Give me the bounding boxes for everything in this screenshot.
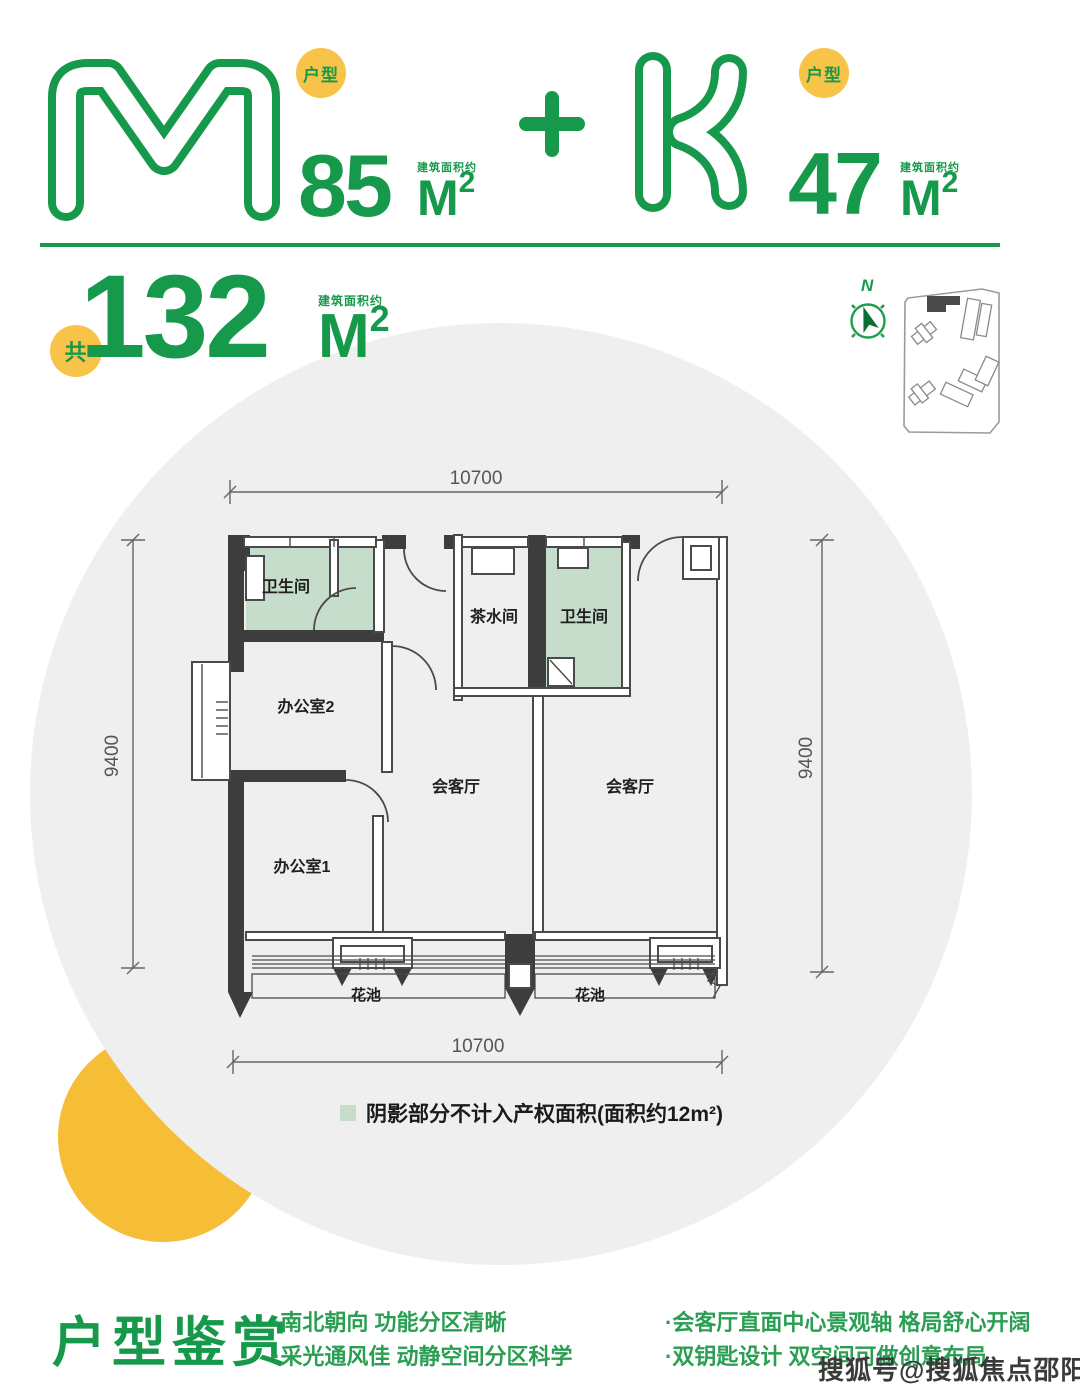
- room-label-flower1: 花池: [351, 986, 381, 1004]
- unit-k-badge: 户型: [799, 48, 849, 98]
- poster-page: 户型 85 建筑面积约 M2 户型 47 建筑面积约 M2 共 132 建筑面积…: [0, 0, 1080, 1387]
- legend: 阴影部分不计入产权面积(面积约12m²): [340, 1098, 723, 1128]
- room-label-meeting2: 会客厅: [606, 777, 654, 796]
- letter-m-logo: [44, 53, 284, 223]
- unit-m-badge-label: 户型: [303, 61, 339, 86]
- features-column-1: ·南北朝向 功能分区清晰 ·采光通风佳 动静空间分区科学: [273, 1306, 572, 1374]
- unit-k-sqm-sup: 2: [942, 169, 959, 198]
- feature-item: ·采光通风佳 动静空间分区科学: [273, 1340, 572, 1374]
- dim-left: 9400: [102, 735, 123, 777]
- dim-top: 10700: [450, 468, 503, 489]
- unit-m-sqm-sup: 2: [459, 169, 476, 198]
- dim-bottom: 10700: [452, 1036, 505, 1057]
- total-sqm-sup: 2: [370, 302, 390, 336]
- dim-right: 9400: [796, 737, 817, 779]
- header-divider: [40, 243, 1000, 247]
- room-label-bath1: 卫生间: [262, 577, 310, 596]
- room-label-tea: 茶水间: [469, 607, 518, 626]
- room-label-meeting1: 会客厅: [432, 777, 480, 796]
- unit-m-sqm-block: 建筑面积约 M2: [417, 162, 477, 223]
- unit-k-sqm: M: [900, 175, 942, 223]
- room-label-bath2: 卫生间: [560, 607, 608, 626]
- feature-item: ·南北朝向 功能分区清晰: [273, 1306, 572, 1340]
- legend-color-swatch: [340, 1105, 356, 1121]
- features-title: 户型鉴赏: [52, 1298, 292, 1377]
- unit-m-badge: 户型: [296, 48, 346, 98]
- unit-k-sqm-block: 建筑面积约 M2: [900, 162, 960, 223]
- letter-k-logo: [617, 40, 765, 220]
- floor-plan: 10700 10700 9400 9400 卫生间 茶水间 卫生间 办公室2 办…: [90, 440, 850, 1090]
- feature-item: ·会客厅直面中心景观轴 格局舒心开阔: [665, 1306, 1030, 1340]
- room-label-office2: 办公室2: [278, 697, 335, 716]
- room-label-office1: 办公室1: [274, 857, 331, 876]
- watermark: 搜狐号@搜狐焦点邵阳站: [818, 1350, 1080, 1387]
- compass-icon: N: [843, 275, 893, 345]
- unit-m-area: 85: [298, 142, 390, 230]
- room-label-flower2: 花池: [575, 986, 605, 1004]
- unit-m-sqm: M: [417, 175, 459, 223]
- compass-north-label: N: [861, 276, 874, 295]
- total-area: 132: [80, 258, 268, 376]
- unit-k-badge-label: 户型: [806, 61, 842, 86]
- legend-text: 阴影部分不计入产权面积(面积约12m²): [366, 1098, 723, 1128]
- plus-icon: [519, 91, 585, 157]
- total-sqm: M: [318, 308, 370, 367]
- site-plan-map: [896, 280, 1016, 444]
- total-sqm-block: 建筑面积约 M2: [318, 294, 390, 367]
- unit-k-area: 47: [788, 140, 880, 228]
